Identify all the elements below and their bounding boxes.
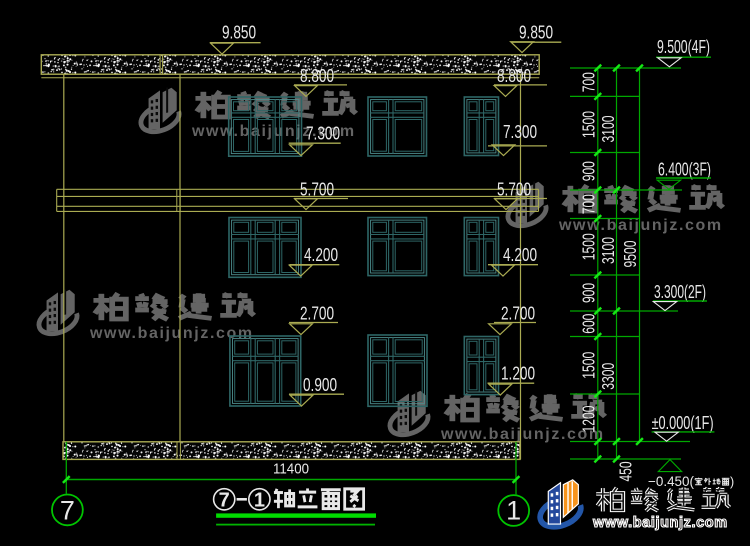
svg-text:3300: 3300 <box>598 363 618 390</box>
svg-text:7.300: 7.300 <box>306 124 340 144</box>
svg-text:0.900: 0.900 <box>303 375 337 395</box>
svg-text:9.850: 9.850 <box>519 23 553 43</box>
svg-text:1.200: 1.200 <box>501 364 535 384</box>
svg-text:11400: 11400 <box>273 461 309 478</box>
svg-text:4.200: 4.200 <box>304 245 338 265</box>
svg-text:www.baijunjz.com: www.baijunjz.com <box>558 217 723 234</box>
svg-text:9.850: 9.850 <box>222 23 256 43</box>
svg-text:1200: 1200 <box>578 405 598 432</box>
svg-text:8.800: 8.800 <box>497 66 531 86</box>
svg-text:3100: 3100 <box>598 237 618 264</box>
svg-text:700: 700 <box>578 72 598 92</box>
svg-text:2.700: 2.700 <box>501 304 535 324</box>
svg-text:3100: 3100 <box>598 115 618 142</box>
svg-text:1: 1 <box>506 496 521 526</box>
svg-text:): ) <box>730 475 734 489</box>
svg-text:±0.000(1F): ±0.000(1F) <box>652 413 714 433</box>
svg-text:1: 1 <box>254 490 265 512</box>
svg-text:9.500(4F): 9.500(4F) <box>657 37 710 57</box>
svg-text:700: 700 <box>578 194 598 214</box>
svg-text:900: 900 <box>578 283 598 303</box>
svg-text:5.700: 5.700 <box>300 180 334 200</box>
svg-text:5.700: 5.700 <box>497 180 531 200</box>
svg-text:9500: 9500 <box>620 240 640 267</box>
svg-text:2.700: 2.700 <box>300 304 334 324</box>
svg-text:8.800: 8.800 <box>300 66 334 86</box>
svg-text:1500: 1500 <box>578 352 598 379</box>
svg-text:3.300(2F): 3.300(2F) <box>654 282 706 302</box>
svg-text:7.300: 7.300 <box>503 122 537 142</box>
svg-text:7: 7 <box>60 496 75 526</box>
svg-text:1500: 1500 <box>578 233 598 260</box>
svg-text:450: 450 <box>616 461 636 481</box>
svg-text:600: 600 <box>578 314 598 334</box>
svg-text:www.baijunjz.com: www.baijunjz.com <box>592 515 728 531</box>
svg-text:6.400(3F): 6.400(3F) <box>658 159 711 179</box>
svg-text:1500: 1500 <box>578 111 598 138</box>
svg-text:www.baijunjz.com: www.baijunjz.com <box>89 325 254 342</box>
svg-text:−0.450(: −0.450( <box>648 474 694 489</box>
svg-text:7: 7 <box>219 490 230 512</box>
svg-text:4.200: 4.200 <box>503 245 537 265</box>
svg-text:900: 900 <box>578 161 598 181</box>
